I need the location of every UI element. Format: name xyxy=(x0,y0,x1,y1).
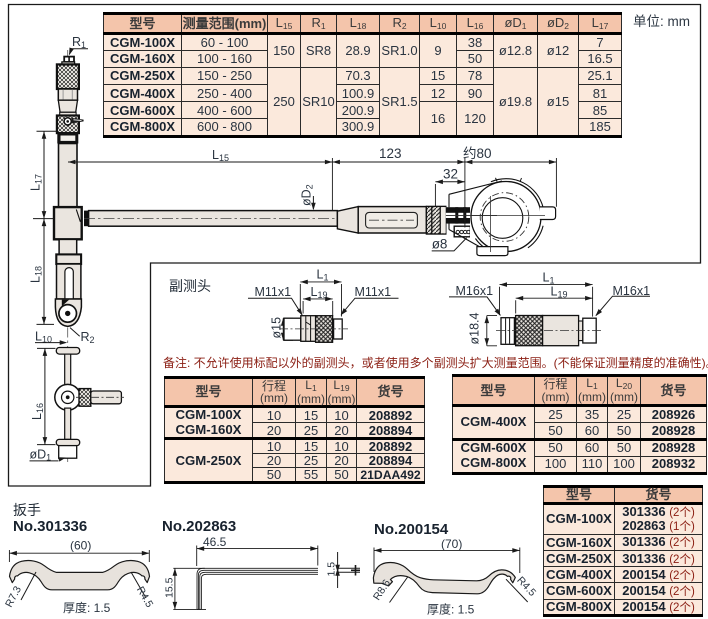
svg-text:L10: L10 xyxy=(35,329,52,344)
svg-text:L17: L17 xyxy=(29,174,44,191)
svg-text:ø18.4: ø18.4 xyxy=(468,312,482,344)
svg-text:R4.5: R4.5 xyxy=(134,585,156,610)
svg-text:L19: L19 xyxy=(311,285,328,300)
svg-text:厚度: 1.5: 厚度: 1.5 xyxy=(63,600,111,615)
svg-text:L19: L19 xyxy=(551,285,568,300)
svg-text:15.5: 15.5 xyxy=(164,577,176,598)
svg-text:M11x1: M11x1 xyxy=(355,285,392,299)
svg-text:M16x1: M16x1 xyxy=(456,284,494,298)
svg-text:32: 32 xyxy=(443,167,458,182)
svg-text:ø8: ø8 xyxy=(432,237,448,252)
svg-text:L1: L1 xyxy=(543,270,555,285)
svg-text:46.5: 46.5 xyxy=(203,535,227,549)
svg-text:L18: L18 xyxy=(29,266,44,283)
svg-text:厚度: 1.5: 厚度: 1.5 xyxy=(427,602,475,617)
svg-text:øD1: øD1 xyxy=(30,448,52,463)
svg-text:(60): (60) xyxy=(70,539,91,553)
svg-text:R2: R2 xyxy=(81,330,95,345)
svg-text:M16x1: M16x1 xyxy=(613,284,651,298)
svg-text:L16: L16 xyxy=(30,403,45,420)
svg-text:(70): (70) xyxy=(441,537,462,551)
svg-text:约80: 约80 xyxy=(463,146,492,161)
svg-text:ø15: ø15 xyxy=(270,317,284,339)
svg-text:R1: R1 xyxy=(72,35,86,50)
svg-text:L15: L15 xyxy=(212,148,229,163)
svg-text:R4.5: R4.5 xyxy=(514,574,538,599)
svg-text:R7.3: R7.3 xyxy=(3,584,24,609)
svg-text:123: 123 xyxy=(379,146,402,161)
svg-text:M11x1: M11x1 xyxy=(255,285,292,299)
svg-text:1.5: 1.5 xyxy=(326,562,338,577)
svg-text:L1: L1 xyxy=(317,268,329,283)
